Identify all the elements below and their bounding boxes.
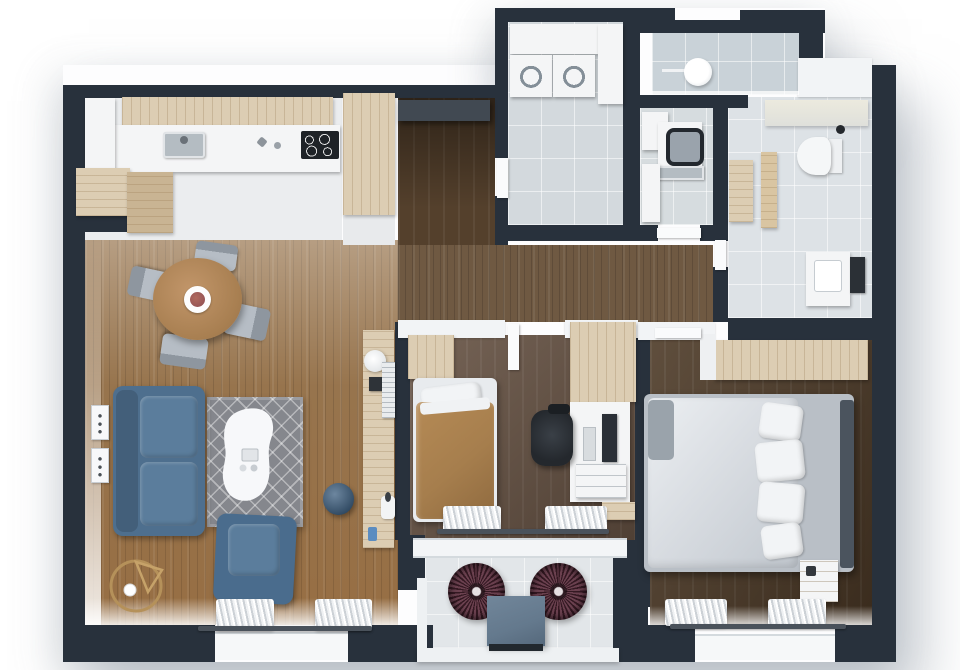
master-wardrobe — [714, 340, 868, 380]
master-wardrobe-edge — [700, 334, 716, 380]
bedroom2-wardrobe-left — [408, 335, 454, 379]
bedroom2-window — [413, 538, 627, 558]
nightstand-item — [806, 566, 816, 576]
bathroom-bench — [729, 160, 753, 222]
kitchen-counter-item-2 — [274, 142, 281, 149]
wall-kitchen-stub — [63, 215, 128, 232]
toilet-button — [836, 125, 845, 134]
monitor — [602, 414, 617, 462]
bathroom-door — [715, 240, 726, 270]
wall-laundry-left-lower — [495, 196, 508, 245]
master-window — [695, 634, 835, 660]
utility-side-unit — [642, 164, 660, 222]
bathroom-basin — [814, 260, 842, 292]
corridor-floor — [398, 245, 713, 322]
master-pillow-4 — [760, 521, 804, 560]
wall-bathroom-bottom — [728, 318, 872, 340]
shower-room-floor — [652, 33, 799, 95]
master-headboard — [840, 400, 854, 568]
laundry-wall-cabinets — [510, 24, 598, 54]
phone — [368, 527, 377, 541]
master-curtain-rod — [670, 624, 846, 629]
office-chair — [531, 410, 573, 466]
wall-bathroom-topface — [798, 58, 872, 97]
shower-glass — [652, 91, 799, 95]
towel-rail — [850, 257, 865, 293]
keyboard — [583, 427, 596, 461]
floor-lamp — [100, 550, 176, 620]
kitchen-base-cabinet-corner — [127, 172, 173, 233]
kitchen-tall-cabinet — [343, 93, 395, 215]
wall-bottom-master-left — [613, 625, 695, 662]
wall-laundry-left-upper — [495, 8, 508, 158]
utility-washer-door — [666, 128, 704, 166]
wall-bathroom-left-upper — [713, 97, 728, 237]
bedroom2-duvet — [416, 402, 494, 519]
hallway-cabinet-side — [343, 215, 395, 245]
balcony-side-table-shadow — [489, 644, 543, 651]
bathroom-wood-mat — [761, 152, 777, 228]
master-pillow-1 — [758, 401, 805, 442]
balcony-side-table — [487, 596, 545, 646]
wall-art-frame-1 — [91, 405, 109, 440]
master-door — [655, 328, 701, 338]
kitchen-faucet — [180, 136, 188, 144]
wall-radiator — [382, 362, 395, 418]
master-curtain-right — [768, 599, 826, 626]
wall-bathroom-left-lower — [713, 267, 728, 322]
entry-console — [398, 100, 490, 121]
laundry-door — [497, 158, 508, 198]
living-window — [215, 632, 348, 660]
master-pillow-2 — [754, 439, 806, 484]
wall-right — [872, 65, 896, 662]
utility-door — [657, 228, 701, 238]
floor-plan-render — [0, 0, 960, 670]
wall-bottom-master-right — [835, 625, 872, 662]
sofa-backrest — [116, 390, 138, 532]
wall-utility-bottom-left — [508, 225, 658, 241]
kitchen-upper-cabinets — [122, 97, 333, 127]
bedroom2-door — [508, 324, 519, 370]
master-curtain-left — [665, 599, 727, 626]
pouf — [323, 483, 354, 515]
bedroom2-curtain-rod — [437, 529, 609, 534]
kitchen-base-cabinet-left — [76, 168, 130, 216]
sofa-cushion-1 — [140, 396, 198, 458]
rain-shower-head — [684, 58, 712, 86]
wall-utility-top — [640, 95, 748, 108]
living-curtain-rod — [198, 626, 372, 631]
desk-drawer-unit — [576, 464, 626, 498]
sofa-cushion-2 — [140, 462, 198, 526]
master-throw-blanket — [648, 400, 674, 460]
wall-art-frame-2 — [91, 448, 109, 483]
office-chair-back — [548, 404, 570, 414]
coffee-table — [212, 405, 284, 505]
master-pillow-3 — [756, 481, 805, 525]
kitchen-cooktop — [301, 131, 339, 159]
dining-plate-food — [190, 292, 205, 307]
bedroom2-wardrobe-right — [570, 322, 636, 402]
wall-laundry-utility — [623, 14, 640, 232]
armchair-cushion — [228, 524, 280, 576]
console-vase-twigs — [385, 492, 391, 502]
balcony-balustrade-left — [417, 578, 427, 653]
wall-bottom-left — [63, 625, 215, 662]
laundry-washer — [510, 55, 552, 97]
laundry-dryer — [553, 55, 595, 97]
toilet — [797, 137, 831, 175]
laundry-tall-unit — [598, 24, 623, 104]
kitchen-counter-left-column — [85, 98, 115, 172]
bathroom-top-shelf — [765, 100, 868, 126]
